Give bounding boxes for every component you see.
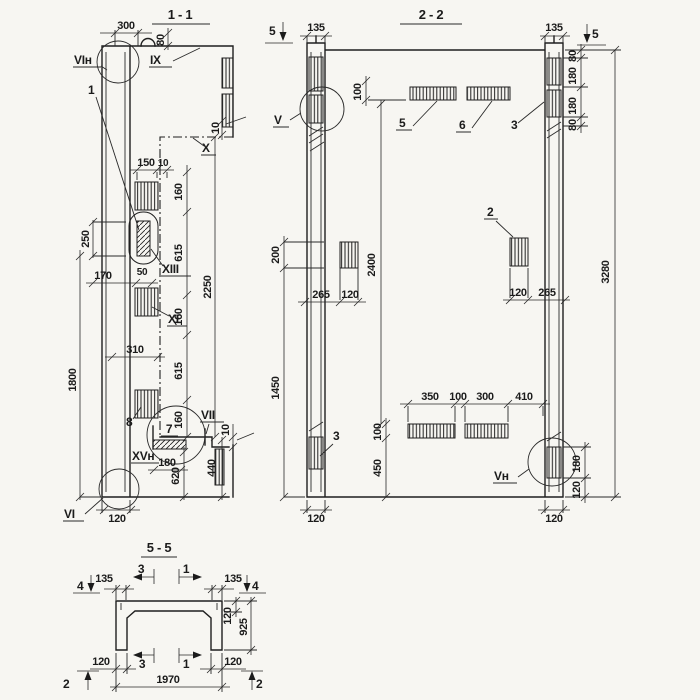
arrow-down-icon — [584, 34, 591, 43]
dim-160-c: 160 — [173, 411, 185, 429]
dim-100-mid: 100 — [449, 391, 467, 403]
label-xvn: XVн — [132, 449, 154, 463]
dim-135-left: 135 — [307, 22, 325, 34]
embedded-plate — [340, 242, 358, 268]
cut-marker-1-top: 1 — [183, 562, 190, 576]
strip-plate — [465, 424, 508, 438]
wall-plate — [309, 437, 323, 469]
wall-plate — [547, 58, 561, 85]
wall-plate — [309, 57, 323, 91]
section-1-1: 1 - 1 300 80 10 150 10 160 615 — [63, 7, 254, 525]
hidden-edge — [160, 137, 233, 437]
dim-925: 925 — [238, 618, 250, 636]
dim-3280: 3280 — [600, 260, 612, 283]
label-vin: VIн — [74, 53, 92, 67]
dim-120-plate-right: 120 — [509, 287, 527, 299]
dim-250: 250 — [80, 230, 92, 248]
dim-120-plate-left: 120 — [341, 289, 359, 301]
edge-channel-plate — [222, 58, 233, 88]
dim-10-bottom: 10 — [220, 424, 232, 436]
arrow-down-icon — [280, 32, 287, 41]
label-ix: IX — [150, 53, 161, 67]
label-vn: Vн — [494, 469, 509, 483]
section-title: 2 - 2 — [419, 7, 444, 22]
wall-plate — [547, 90, 561, 117]
label-v: V — [274, 113, 282, 127]
dim-80-b: 80 — [567, 119, 579, 131]
dim-450: 450 — [372, 459, 384, 477]
dim-lines — [90, 589, 251, 687]
dim-180-right-chain: 180 — [571, 455, 583, 473]
dim-135-right: 135 — [545, 22, 563, 34]
slot-insert — [137, 221, 150, 256]
channel-outline — [116, 601, 222, 650]
strip-plate-6 — [467, 87, 510, 100]
cut-marker-2-left: 2 — [63, 677, 70, 691]
dim-120-right-chain: 120 — [571, 481, 583, 499]
detail-circle-vi — [99, 469, 139, 509]
lifting-loop — [141, 39, 155, 46]
label-vii: VII — [201, 408, 215, 422]
flange-end-marks — [121, 603, 217, 610]
dim-120-bottom-right: 120 — [224, 656, 242, 668]
embedded-plate-2 — [510, 238, 528, 266]
dim-50: 50 — [137, 267, 148, 278]
dim-120-wall-left: 120 — [307, 513, 325, 525]
dim-135-right: 135 — [224, 573, 242, 585]
label-5: 5 — [399, 116, 406, 130]
detail-circle-vin — [97, 41, 139, 83]
label-2-leader — [484, 219, 513, 237]
dim-100-top: 100 — [352, 83, 364, 101]
embedded-plate — [135, 288, 158, 316]
dim-170: 170 — [94, 270, 112, 282]
cut-marker-2-right: 2 — [256, 677, 263, 691]
corner-angle-plate — [153, 440, 186, 449]
dim-2400: 2400 — [366, 253, 378, 276]
dim-200: 200 — [270, 246, 282, 264]
dim-265-right: 265 — [538, 287, 556, 299]
label-2: 2 — [487, 205, 494, 219]
cut-marker-5-right: 5 — [592, 27, 599, 41]
dim-1450: 1450 — [270, 376, 282, 399]
dim-180-b: 180 — [567, 97, 579, 115]
dim-440: 440 — [206, 459, 218, 477]
label-vi: VI — [64, 507, 75, 521]
dim-80: 80 — [155, 34, 167, 46]
strip-plate — [408, 424, 455, 438]
dim-350: 350 — [421, 391, 439, 403]
dim-300: 300 — [117, 20, 135, 32]
label-xi: XI — [168, 312, 179, 326]
cut-marker-5-left: 5 — [269, 24, 276, 38]
arrow-up-icon — [85, 671, 92, 680]
dim-120-bottom-left: 120 — [92, 656, 110, 668]
dim-150: 150 — [137, 157, 155, 169]
embedded-plate — [135, 390, 158, 418]
dim-100-bottom: 100 — [372, 423, 384, 441]
section-title: 5 - 5 — [147, 540, 172, 555]
dim-120: 120 — [108, 513, 126, 525]
section-2-2: 2 - 2 135 135 100 80 180 180 80 3280 — [265, 7, 621, 525]
label-3-top-leader — [518, 102, 544, 123]
dim-265-left: 265 — [312, 289, 330, 301]
cut-marker-4-right: 4 — [252, 579, 259, 593]
label-xiii: XIII — [162, 262, 179, 276]
dim-10-step: 10 — [158, 158, 169, 169]
dim-135-left: 135 — [95, 573, 113, 585]
dim-1800: 1800 — [67, 368, 79, 391]
dim-300: 300 — [476, 391, 494, 403]
label-1: 1 — [88, 83, 95, 97]
arrow-down-icon — [88, 583, 95, 592]
cut-marker-3-bottom: 3 — [139, 657, 146, 671]
arrow-right-icon — [193, 652, 202, 659]
dim-615-a: 615 — [173, 244, 185, 262]
dim-120-wall-right: 120 — [545, 513, 563, 525]
dim-160-a: 160 — [173, 183, 185, 201]
arrow-up-icon — [249, 671, 256, 680]
dim-180: 180 — [158, 457, 176, 469]
wall-plate — [547, 447, 561, 478]
drawing-sheet: 1 - 1 300 80 10 150 10 160 615 — [0, 0, 700, 700]
label-x: X — [202, 141, 210, 155]
cut-marker-1-bottom: 1 — [183, 657, 190, 671]
section-5-5: 5 - 5 135 135 120 925 120 120 1970 4 4 3… — [63, 540, 266, 692]
label-3-bottom: 3 — [333, 429, 340, 443]
dim-1970: 1970 — [156, 674, 179, 686]
label-8: 8 — [126, 415, 133, 429]
arrow-left-icon — [133, 652, 142, 659]
label-3-top: 3 — [511, 118, 518, 132]
section-title: 1 - 1 — [168, 7, 193, 22]
wall-plate — [309, 95, 323, 123]
dim-310: 310 — [126, 344, 144, 356]
arrow-down-icon — [244, 583, 251, 592]
dim-10-top: 10 — [210, 122, 222, 134]
dim-410: 410 — [515, 391, 533, 403]
dim-180-a: 180 — [567, 67, 579, 85]
label-6: 6 — [459, 118, 466, 132]
strip-plate-5 — [410, 87, 456, 100]
arrow-right-icon — [193, 574, 202, 581]
dim-2250: 2250 — [202, 275, 214, 298]
embedded-plate — [135, 182, 158, 210]
dim-620: 620 — [170, 467, 182, 485]
dim-120-flange: 120 — [222, 607, 234, 625]
label-7: 7 — [166, 422, 173, 436]
structural-drawing: 1 - 1 300 80 10 150 10 160 615 — [0, 0, 700, 700]
dim-615-b: 615 — [173, 362, 185, 380]
cut-marker-4-left: 4 — [77, 579, 84, 593]
dim-80-a: 80 — [567, 50, 579, 62]
